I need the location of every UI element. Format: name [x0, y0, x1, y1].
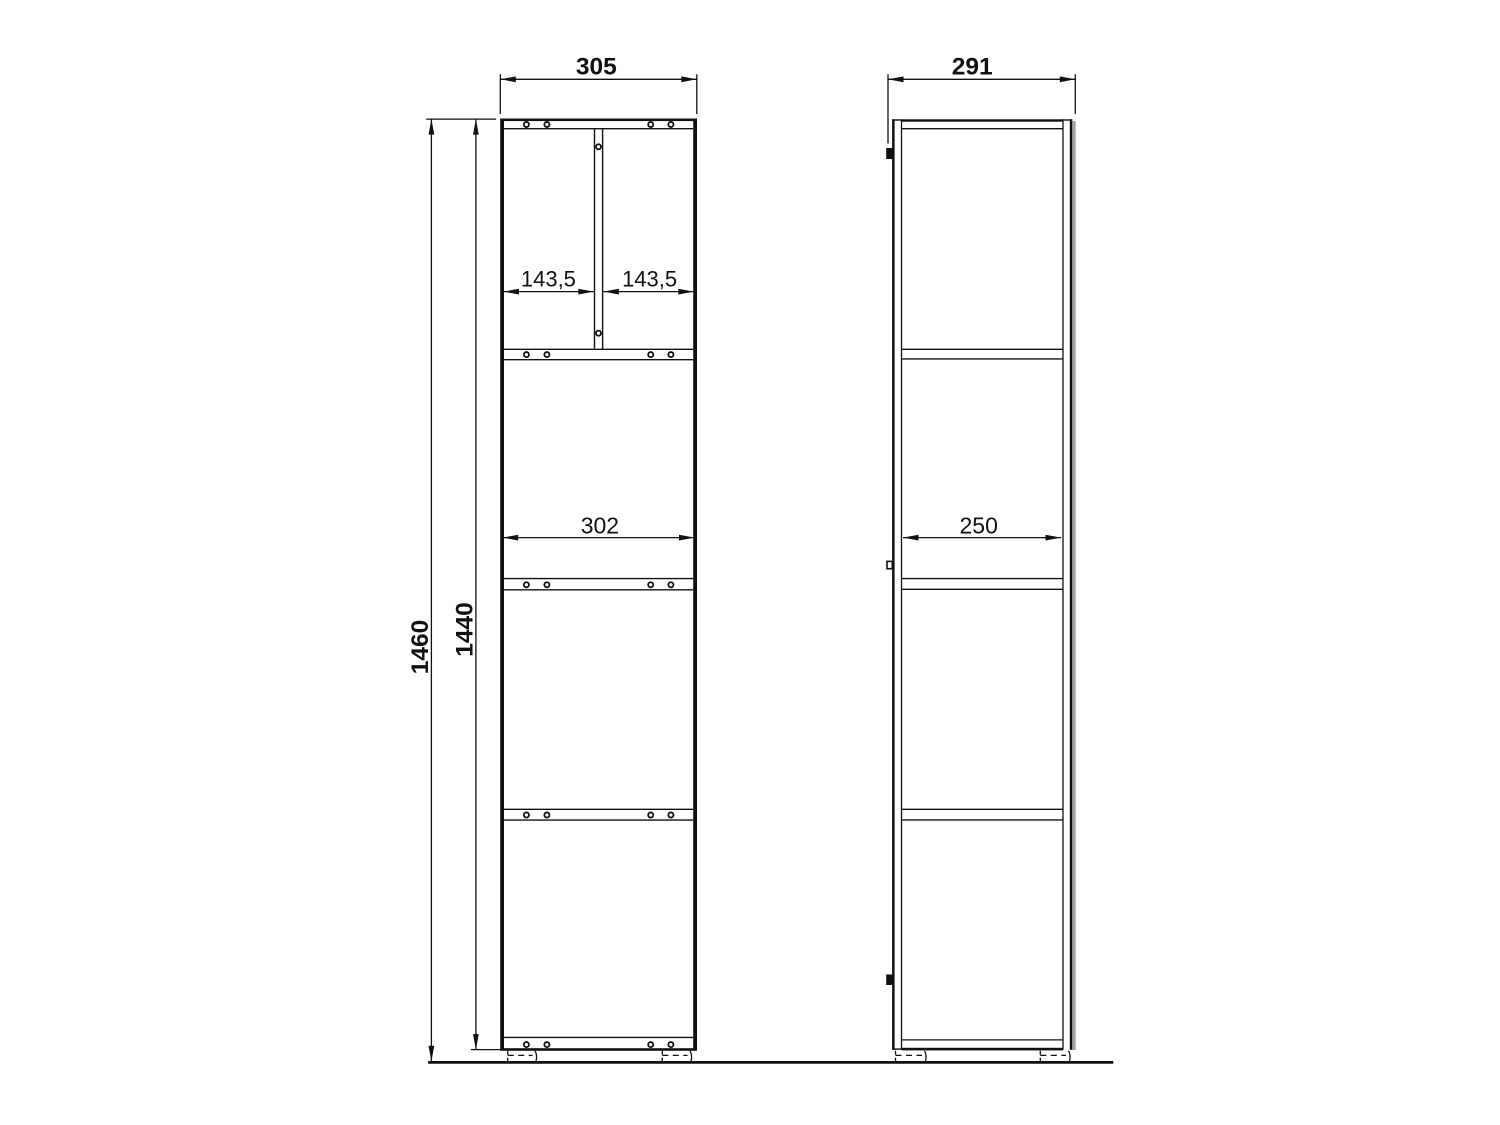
svg-text:143,5: 143,5	[622, 267, 677, 292]
svg-text:1440: 1440	[452, 602, 479, 657]
svg-text:1460: 1460	[407, 620, 434, 675]
svg-text:291: 291	[952, 54, 993, 81]
svg-text:143,5: 143,5	[521, 267, 576, 292]
svg-text:250: 250	[960, 512, 998, 538]
svg-text:302: 302	[581, 513, 619, 539]
svg-text:305: 305	[576, 54, 617, 81]
